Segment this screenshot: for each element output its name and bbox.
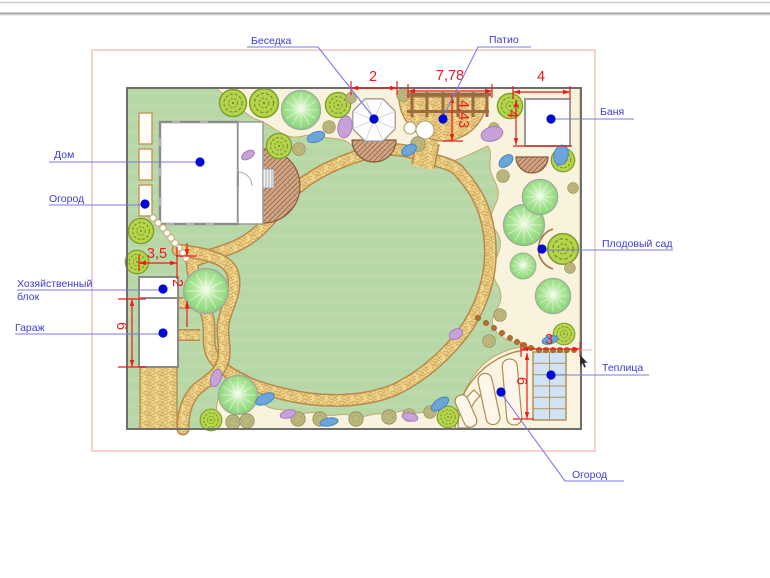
svg-text:7,78: 7,78 — [436, 68, 464, 84]
paved-yard — [140, 367, 177, 429]
svg-text:6: 6 — [513, 377, 529, 385]
leader-dot-icon — [195, 157, 204, 166]
small-shrub-icon — [382, 410, 396, 424]
tree-icon — [535, 278, 570, 313]
label-hozblok-line1: Хозяйственный — [17, 278, 92, 290]
leader-dot-icon — [369, 114, 378, 123]
svg-text:4: 4 — [504, 110, 520, 118]
ornamental-shrub-icon — [128, 218, 153, 243]
svg-text:4: 4 — [537, 69, 545, 85]
ornamental-shrub-icon — [548, 234, 579, 265]
label-banya: Баня — [600, 106, 624, 118]
ornamental-shrub-icon — [220, 90, 247, 117]
svg-text:2: 2 — [369, 69, 377, 85]
small-shrub-icon — [494, 309, 507, 322]
tree-icon — [184, 269, 229, 314]
leader-dot-icon — [158, 284, 167, 293]
svg-text:4,43: 4,43 — [455, 100, 471, 128]
small-shrub-icon — [349, 412, 363, 426]
small-shrub-icon — [240, 414, 254, 428]
tree-icon — [219, 376, 258, 415]
svg-text:3,5: 3,5 — [147, 246, 167, 262]
tree-icon — [510, 253, 536, 279]
tree-icon — [282, 91, 321, 130]
ornamental-shrub-icon — [266, 133, 291, 158]
ornamental-shrub-icon — [200, 409, 222, 431]
label-teplitsa: Теплица — [602, 362, 643, 374]
patio-table — [404, 122, 416, 134]
small-shrub-icon — [497, 170, 510, 183]
label-besedka: Беседка — [251, 35, 292, 47]
label-garazh: Гараж — [15, 322, 45, 334]
entrance-steps — [263, 169, 274, 188]
landscape-plan-canvas: 2 7,78 4 4,43 4 — [0, 0, 770, 578]
patio-table — [416, 121, 434, 139]
leader-dot-icon — [140, 199, 149, 208]
small-shrub-icon — [565, 263, 576, 274]
svg-text:2: 2 — [169, 279, 185, 287]
label-patio: Патио — [489, 34, 519, 46]
banya-building — [525, 99, 570, 146]
label-plodovy-sad: Плодовый сад — [602, 238, 673, 250]
small-shrub-icon — [293, 143, 306, 156]
tree-icon — [522, 179, 557, 214]
leader-dot-icon — [438, 114, 447, 123]
leader-dot-icon — [546, 370, 555, 379]
small-shrub-icon — [483, 335, 496, 348]
leader-dot-icon — [158, 328, 167, 337]
house-annex — [238, 122, 263, 224]
label-ogorod-top: Огород — [49, 193, 84, 205]
svg-text:6: 6 — [113, 322, 129, 330]
leader-dot-icon — [537, 244, 546, 253]
small-shrub-icon — [226, 415, 240, 429]
leader-dot-icon — [496, 387, 505, 396]
label-ogorod-bottom: Огород — [572, 469, 607, 481]
site-plan — [125, 88, 581, 431]
label-dom: Дом — [54, 149, 74, 161]
small-shrub-icon — [323, 121, 336, 134]
small-shrub-icon — [568, 183, 579, 194]
label-hozblok-line2: блок — [17, 291, 40, 303]
greenhouse — [533, 352, 566, 420]
svg-text:3: 3 — [545, 332, 553, 348]
window-divider — [0, 3, 770, 16]
house — [160, 122, 238, 224]
ornamental-shrub-icon — [250, 89, 279, 118]
leader-dot-icon — [546, 114, 555, 123]
